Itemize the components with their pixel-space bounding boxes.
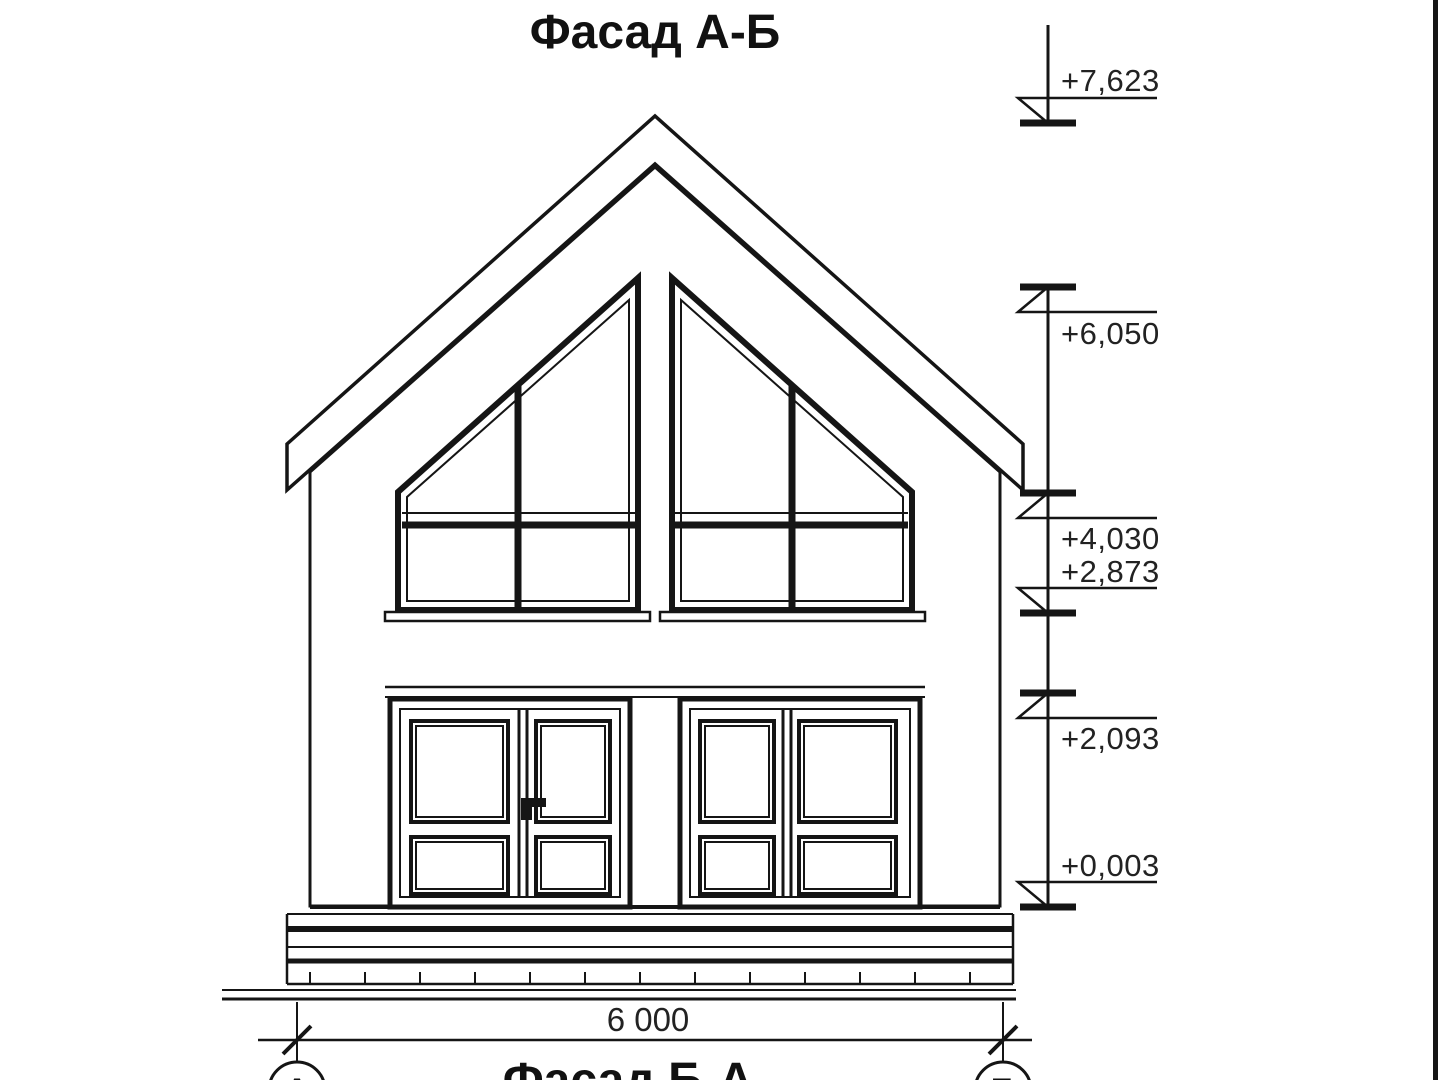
axis-letter: Б <box>991 1072 1015 1080</box>
axis-bubble-a: А <box>269 1062 325 1080</box>
elevation-label: +7,623 <box>1061 63 1160 98</box>
ground-line <box>222 990 1016 999</box>
door-gap-strip <box>628 686 682 907</box>
elevation-marker-2093: +2,093 <box>1018 693 1160 756</box>
elevation-markers: +7,623 +6,050 +4,030 +2,873 +2,093 <box>1018 25 1160 907</box>
door-head-band <box>385 686 925 698</box>
right-border <box>1433 0 1438 1080</box>
dimension-value: 6 000 <box>607 1001 690 1038</box>
elevation-marker-6050: +6,050 <box>1018 287 1160 351</box>
right-crop-mask <box>1158 0 1433 1080</box>
deck-plank-joints <box>310 972 970 984</box>
page-title: Фасад А-Б <box>530 6 781 59</box>
window-sill <box>385 612 650 621</box>
elevation-marker-7623: +7,623 <box>1018 63 1160 123</box>
left-door-unit <box>390 699 630 907</box>
elevation-marker-2873: +2,873 <box>1018 554 1160 613</box>
elevation-label: +2,093 <box>1061 721 1160 756</box>
axis-letter: А <box>285 1072 310 1080</box>
elevation-label: +2,873 <box>1061 554 1160 589</box>
elevation-label: +6,050 <box>1061 316 1160 351</box>
footer-title: Фасад Б-А <box>503 1054 754 1080</box>
window-sill <box>660 612 925 621</box>
elevation-label: +0,003 <box>1061 848 1160 883</box>
elevation-marker-4030: +4,030 <box>1018 493 1160 556</box>
elevation-marker-0003: +0,003 <box>1018 848 1160 907</box>
base-platform <box>222 907 1016 999</box>
facade-drawing-sheet: +7,623 +6,050 +4,030 +2,873 +2,093 <box>0 0 1440 1080</box>
right-door-unit <box>680 699 920 907</box>
axis-bubble-b: Б <box>975 1062 1031 1080</box>
elevation-label: +4,030 <box>1061 521 1160 556</box>
facade-drawing: +7,623 +6,050 +4,030 +2,873 +2,093 <box>0 0 1440 1080</box>
